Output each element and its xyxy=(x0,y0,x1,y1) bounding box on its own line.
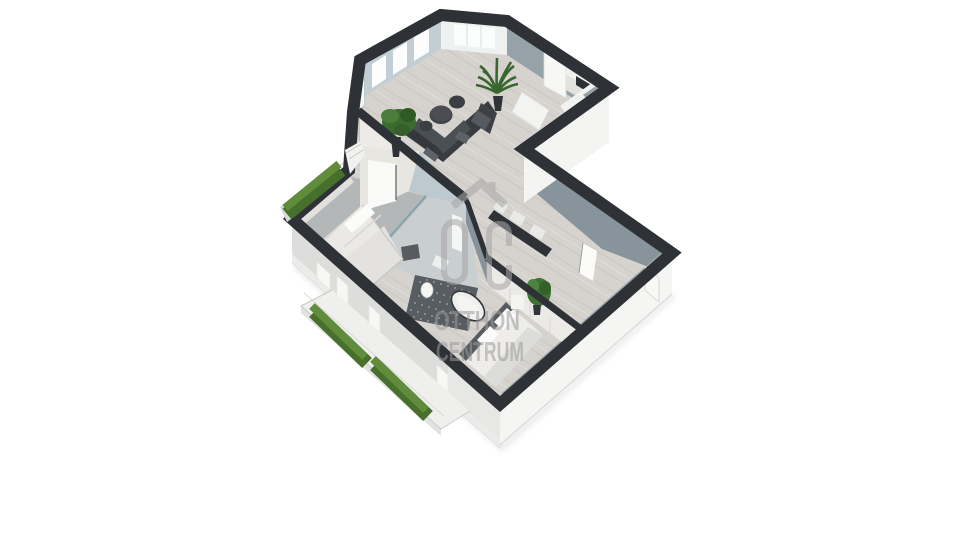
svg-text:OTTHON: OTTHON xyxy=(434,305,520,336)
svg-text:CENTRUM: CENTRUM xyxy=(436,336,524,367)
